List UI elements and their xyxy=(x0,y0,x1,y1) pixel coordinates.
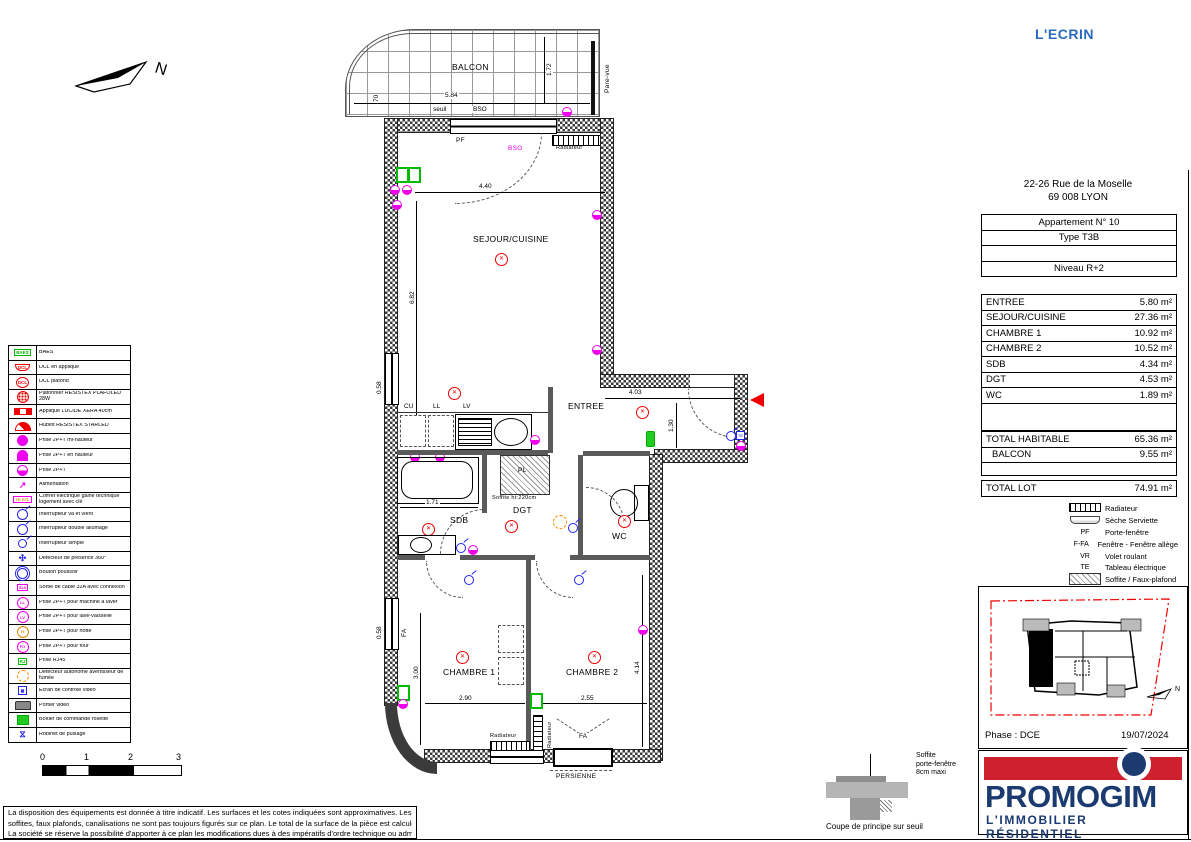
dim-ch1-w: 2.90 xyxy=(458,695,473,702)
persienne-label: PERSIENNE xyxy=(556,773,596,780)
ll-label: LL xyxy=(432,403,441,410)
logo-red-banner xyxy=(984,757,1182,780)
dcl-wc xyxy=(618,515,631,528)
applique-icon xyxy=(14,408,32,415)
seuil-label: seuil xyxy=(432,106,447,113)
apartment-type: Type T3B xyxy=(982,231,1176,247)
partition-chambres xyxy=(526,560,531,750)
dim-ch2-h: 4.14 xyxy=(634,660,641,675)
placard-dgt xyxy=(500,455,550,495)
smoke-detector-icon xyxy=(553,515,567,529)
threshold-section-detail: Soffite porte-fenêtre 8cm maxi Coupe de … xyxy=(826,752,986,834)
legend-row: HPrise 2P+T pour hotte xyxy=(9,625,130,640)
switch-entree xyxy=(726,431,736,441)
sortie-cable-icon: 32A xyxy=(17,584,28,591)
wc-label: WC xyxy=(612,531,627,541)
legend-row: F-FAFenêtre - Fenêtre allège xyxy=(1068,538,1178,550)
partition-dgt-entree xyxy=(548,387,553,453)
legend-row: LVPrise 2P+T pour lave-vaisselle xyxy=(9,610,130,625)
apartment-empty-row xyxy=(982,246,1176,262)
cu-label: CU xyxy=(403,403,414,410)
rj45-icon: RJ xyxy=(18,658,28,665)
prise-ll-icon: LL xyxy=(17,597,29,609)
dim-ch2-w: 2.55 xyxy=(580,695,595,702)
chambre1-label: CHAMBRE 1 xyxy=(443,667,495,677)
legend-row: Portier vidéo xyxy=(9,699,130,714)
socket-sejour-5 xyxy=(592,345,602,355)
legend-row: ▦Écran de contrôle vidéo xyxy=(9,684,130,699)
switch-dgt xyxy=(568,523,578,533)
table-row: DGT4.53 m² xyxy=(982,373,1176,389)
symbols-legend-right: Radiateur Sèche Serviette PFPorte-fenêtr… xyxy=(1068,503,1178,586)
socket-chambre2 xyxy=(638,625,648,635)
lv-label: LV xyxy=(462,403,471,410)
door-arc-chambre1 xyxy=(426,561,463,598)
table-row: SEJOUR/CUISINE27.36 m² xyxy=(982,311,1176,327)
socket-sejour-1 xyxy=(390,185,400,195)
dgt-label: DGT xyxy=(513,505,532,515)
pare-vue-label: Pare-vue xyxy=(604,64,611,93)
door-arc-chambre2 xyxy=(536,561,573,598)
symbols-legend-left: BAESBAES DCLDCL en applique DCLDCL plafo… xyxy=(8,345,131,743)
table-row: TOTAL LOT74.91 m² xyxy=(982,481,1176,496)
dim-70: 70 xyxy=(373,94,380,103)
prise-mi-hauteur-icon xyxy=(17,435,28,446)
partition-bedrooms-c xyxy=(570,555,650,560)
detecteur-presence-icon: ✣ xyxy=(19,553,27,564)
dim-line-ch1-w xyxy=(425,703,525,704)
table-empty-row xyxy=(982,404,1176,430)
bathtub-inner xyxy=(401,461,473,499)
legend-row: Soffite / Faux-plafond xyxy=(1068,574,1178,586)
fa-label-chambre1: FA xyxy=(401,628,408,637)
apartment-level: Niveau R+2 xyxy=(982,262,1176,277)
balcony-railing xyxy=(349,33,599,114)
socket-symbol xyxy=(562,107,572,117)
scale-bar-segments xyxy=(42,765,182,776)
legend-row: Sèche Serviette xyxy=(1068,515,1178,527)
project-title: L'ECRIN xyxy=(1035,26,1094,42)
partition-wc-top xyxy=(583,451,650,456)
coffret-gtl-icon: TE GTL xyxy=(13,496,31,503)
soffit-icon xyxy=(1069,573,1101,585)
sejour-label: SEJOUR/CUISINE xyxy=(473,234,549,244)
prise-hotte-icon: H xyxy=(17,626,29,638)
legend-row: Prise 2P+T xyxy=(9,464,130,479)
radiator-sejour-label: Radiateur xyxy=(556,145,583,151)
dim-line-sdb xyxy=(400,507,478,508)
legend-row: Boîtier de commande rosette xyxy=(9,713,130,728)
switch-sdb xyxy=(456,543,466,553)
dim-line-ch1-h xyxy=(420,613,421,745)
dim-balcony-depth: 1.72 xyxy=(546,62,553,77)
interrupteur-simple-icon xyxy=(18,539,27,548)
dcl-cuisine xyxy=(448,387,461,400)
legend-row: TE GTLCoffret électrique gaine technique… xyxy=(9,493,130,508)
socket-kitchen-3 xyxy=(530,435,540,445)
wardrobe-ch1-a xyxy=(498,625,524,653)
scale-tick-1: 1 xyxy=(84,752,89,762)
scale-bar: 0 1 2 3 xyxy=(40,752,182,778)
dim-window1: 0.58 xyxy=(376,380,383,395)
floor-plan-sheet: { "project": { "name": "L'ECRIN", "addre… xyxy=(0,0,1191,842)
site-plan-map: N xyxy=(979,587,1185,727)
apartment-number: Appartement N° 10 xyxy=(982,215,1176,231)
interrupteur-double-icon xyxy=(17,524,28,535)
rosette-icon xyxy=(17,715,29,725)
disclaimer-line3: La société se réserve la possibilité d'a… xyxy=(8,829,412,840)
dim-window2: 0.58 xyxy=(376,625,383,640)
scale-tick-3: 3 xyxy=(176,752,181,762)
dcl-sejour xyxy=(495,253,508,266)
balcony-label: BALCON xyxy=(452,62,489,72)
dim-sejour-h: 6.82 xyxy=(409,290,416,305)
table-row: WC1.89 m² xyxy=(982,388,1176,404)
site-plan-box: N Phase : DCE 19/07/2024 xyxy=(978,586,1188,749)
dim-entree-h: 1.30 xyxy=(668,418,675,433)
dim-sejour-w: 4.40 xyxy=(478,183,493,190)
legend-row: Bouton poussoir xyxy=(9,566,130,581)
interrupteur-vv-icon xyxy=(17,509,28,520)
table-row: SDB4.34 m² xyxy=(982,357,1176,373)
legend-row: Prise 2P+T mi-hauteur xyxy=(9,434,130,449)
portier-icon xyxy=(15,701,31,710)
dim-ch1-h: 3.00 xyxy=(413,665,420,680)
table-row: CHAMBRE 110.92 m² xyxy=(982,326,1176,342)
socket-sejour-3 xyxy=(392,200,402,210)
door-arc-pf xyxy=(455,133,542,204)
radiator-chambre2 xyxy=(533,715,543,751)
dcl-entree xyxy=(636,406,649,419)
dim-entree-w: 4.03 xyxy=(628,389,643,396)
section-hatch xyxy=(880,800,892,812)
dim-line-ch2-h xyxy=(642,575,643,747)
totals-table: TOTAL HABITABLE65.36 m² BALCON9.55 m² xyxy=(981,431,1177,476)
legend-row: Hublot RESISTEX STARLED xyxy=(9,419,130,434)
dim-line-balcony-depth xyxy=(544,37,545,103)
dim-balcony-length: 5.84 xyxy=(444,92,459,99)
dim-line-balcony xyxy=(354,103,590,104)
radiator-chambre1-label: Radiateur xyxy=(490,733,517,739)
plafonnier-icon xyxy=(17,391,29,403)
daaf-icon xyxy=(17,670,29,682)
areas-table: ENTREE5.80 m² SEJOUR/CUISINE27.36 m² CHA… xyxy=(981,294,1177,431)
robinet-icon: ⧖ xyxy=(19,729,25,740)
legend-row: DCLDCL plafond xyxy=(9,375,130,390)
wall-right-sejour xyxy=(601,119,613,377)
logo-wordmark: PROMOGIM xyxy=(985,779,1157,815)
toilet-tank xyxy=(634,485,649,521)
phase-label: Phase : DCE xyxy=(985,730,1040,741)
dim-line-ch2-w xyxy=(535,703,647,704)
legend-row: Prise 2P+T en hauteur xyxy=(9,449,130,464)
alimentation-icon: ↗ xyxy=(19,480,27,491)
legend-row: Interrupteur double allumage xyxy=(9,522,130,537)
legend-row: FOPrise 2P+T pour four xyxy=(9,640,130,655)
legend-row: LLPrise 2P+T pour machine à laver xyxy=(9,596,130,611)
dim-line-entree-h xyxy=(676,403,677,448)
sink-drainer xyxy=(458,418,492,446)
dcl-chambre1 xyxy=(456,651,469,664)
entry-door-opening xyxy=(690,375,735,387)
project-address: 22-26 Rue de la Moselle 69 008 LYON xyxy=(980,178,1176,204)
disclaimer-box: La disposition des équipements est donné… xyxy=(3,806,417,839)
hublot-icon xyxy=(15,422,31,431)
baes-icon: BAES xyxy=(14,349,31,356)
section-slab xyxy=(826,782,908,798)
videophone-icon xyxy=(646,431,655,447)
sdb-label: SDB xyxy=(450,515,468,525)
switch-chambre2 xyxy=(574,575,584,585)
wall-corner-round xyxy=(385,703,437,774)
dcl-applique-icon: DCL xyxy=(15,364,30,371)
disclaimer-line2: soffites, faux plafonds, canalisations n… xyxy=(8,819,412,830)
legend-row: ✣Détecteur de présence 360° xyxy=(9,552,130,567)
legend-row: Détecteur autonome avertisseur de fumée xyxy=(9,669,130,684)
legend-row: Radiateur xyxy=(1068,503,1178,515)
socket-sejour-2 xyxy=(402,185,412,195)
prise-lv-icon: LV xyxy=(17,611,29,623)
chambre2-label: CHAMBRE 2 xyxy=(566,667,618,677)
legend-row: RJPrise RJ45 xyxy=(9,654,130,669)
soffite-note: Soffite ht:220cm xyxy=(492,495,536,501)
dcl-plafond-icon: DCL xyxy=(16,377,29,388)
radiator-icon xyxy=(1069,503,1101,512)
north-letter: N xyxy=(153,60,169,80)
wall-right-chambre2 xyxy=(650,455,662,760)
dim-sdb-w: 1.71 xyxy=(425,499,440,506)
socket-chambre1 xyxy=(398,699,408,709)
partition-bedrooms-a xyxy=(397,555,425,560)
coupe-note: Soffite porte-fenêtre 8cm maxi xyxy=(916,752,956,778)
rj45-sejour-b xyxy=(408,167,421,183)
wardrobe-ch1-b xyxy=(498,657,524,685)
ecran-controle-icon: ▦ xyxy=(18,686,28,695)
section-sill xyxy=(836,776,886,782)
fa-window-chambre1 xyxy=(385,598,399,650)
legend-row: Plafonnier RESISTEX PLAFOLED 28W xyxy=(9,390,130,405)
promogim-logo-box: PROMOGIM L'IMMOBILIER RÉSIDENTIEL xyxy=(978,750,1188,835)
dim-line-entree-w xyxy=(605,398,740,399)
rj45-chambre2 xyxy=(530,693,543,709)
legend-row: ⧖Robinet de puisage xyxy=(9,728,130,742)
legend-row: PFPorte-fenêtre xyxy=(1068,527,1178,539)
address-line1: 22-26 Rue de la Moselle xyxy=(980,178,1176,191)
legend-row: ↗Alimentation xyxy=(9,478,130,493)
bouton-poussoir-icon xyxy=(15,566,30,581)
table-row: TOTAL HABITABLE65.36 m² xyxy=(982,432,1176,448)
dcl-chambre2 xyxy=(588,651,601,664)
apartment-info-table: Appartement N° 10 Type T3B Niveau R+2 xyxy=(981,214,1177,277)
dcl-dgt xyxy=(505,520,518,533)
persienne-brace xyxy=(550,765,612,771)
bso-label-sejour: BSO xyxy=(508,145,523,152)
dim-line-sejour-w xyxy=(415,192,605,193)
table-row: BALCON9.55 m² xyxy=(982,448,1176,464)
legend-row: Applique LUCIDE XERA 40cm xyxy=(9,405,130,420)
sheet-bottom-border xyxy=(0,839,1191,840)
towel-dryer-icon xyxy=(1070,516,1100,524)
legend-row: VRVolet roulant xyxy=(1068,550,1178,562)
pl-label: PL xyxy=(518,467,527,474)
scale-tick-2: 2 xyxy=(128,752,133,762)
dim-line-sejour-h xyxy=(416,201,417,441)
address-line2: 69 008 LYON xyxy=(980,191,1176,204)
socket-sejour-4 xyxy=(592,210,602,220)
fa-window-sejour xyxy=(385,353,399,405)
appliance-ll xyxy=(428,415,454,447)
floor-plan: Pare-vue BALCON 5.84 seuil BSO 1.72 70 P… xyxy=(340,15,772,797)
prise-icon xyxy=(17,465,28,476)
logo-circle xyxy=(1122,752,1146,776)
te-box-icon: TE xyxy=(736,431,745,440)
switch-chambre1 xyxy=(464,575,474,585)
table-row: CHAMBRE 210.52 m² xyxy=(982,342,1176,358)
socket-entree xyxy=(736,441,746,451)
entry-marker-icon xyxy=(750,393,764,407)
pf-window-sejour xyxy=(450,119,557,134)
partition-wc-left xyxy=(578,455,583,555)
north-arrow-icon: N xyxy=(68,48,178,103)
legend-row: Interrupteur simple xyxy=(9,537,130,552)
partition-bedrooms-b xyxy=(460,555,535,560)
socket-sdb xyxy=(468,545,478,555)
sdb-basin xyxy=(410,537,432,553)
legend-row: DCLDCL en applique xyxy=(9,361,130,376)
bso-label-balcony: BSO xyxy=(472,106,488,113)
table-row: ENTREE5.80 m² xyxy=(982,295,1176,311)
wall-bottom-entree xyxy=(655,450,747,462)
partition-sdb-dgt xyxy=(482,455,487,513)
entree-label: ENTREE xyxy=(568,401,604,411)
prise-hauteur-icon xyxy=(17,450,28,461)
logo-tagline: L'IMMOBILIER RÉSIDENTIEL xyxy=(986,813,1187,841)
legend-row: BAESBAES xyxy=(9,346,130,361)
total-lot-table: TOTAL LOT74.91 m² xyxy=(981,480,1177,497)
fa-label-chambre2: FA xyxy=(578,733,588,740)
radiator-chambre2-label: Radiateur xyxy=(547,721,553,748)
legend-row: Interrupteur va et vient xyxy=(9,508,130,523)
sink-bowl xyxy=(494,418,528,446)
disclaimer-line1: La disposition des équipements est donné… xyxy=(8,808,412,819)
window-chambre1 xyxy=(490,750,544,764)
date-label: 19/07/2024 xyxy=(1121,730,1169,741)
site-north-letter: N xyxy=(1175,686,1180,693)
scale-tick-0: 0 xyxy=(40,752,45,762)
pare-vue-panel xyxy=(591,41,595,115)
table-empty-row xyxy=(982,463,1176,475)
appliance-cu xyxy=(400,415,426,447)
legend-row: 32ASortie de câble 32A avec connexion xyxy=(9,581,130,596)
sheet-right-border xyxy=(1188,170,1189,840)
coupe-caption: Coupe de principe sur seuil xyxy=(826,822,923,831)
section-stem xyxy=(850,798,880,820)
prise-four-icon: FO xyxy=(17,641,29,653)
